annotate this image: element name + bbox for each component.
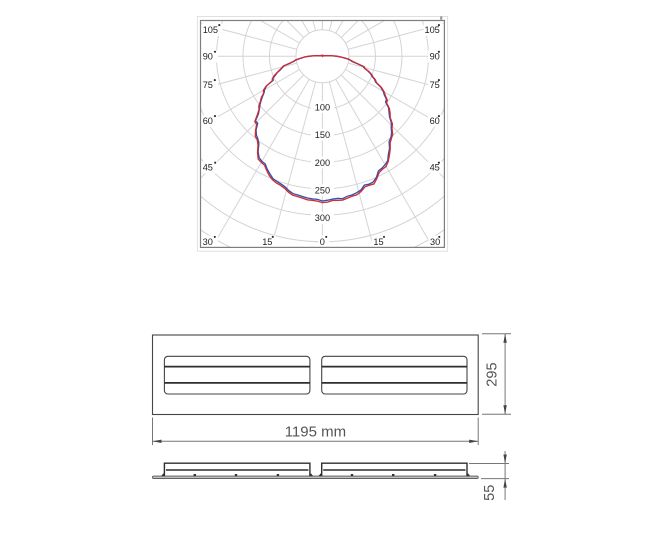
svg-text:45: 45 [430, 163, 440, 173]
svg-text:250: 250 [315, 186, 330, 196]
svg-text:0: 0 [320, 237, 325, 247]
svg-text:300: 300 [315, 213, 330, 223]
svg-text:15: 15 [262, 237, 272, 247]
svg-text:15: 15 [373, 237, 383, 247]
svg-text:75: 75 [203, 80, 213, 90]
svg-text:60: 60 [430, 116, 440, 126]
svg-text:105: 105 [203, 25, 218, 35]
svg-text:200: 200 [315, 158, 330, 168]
svg-text:30: 30 [430, 237, 440, 247]
svg-text:30: 30 [203, 237, 213, 247]
svg-text:90: 90 [203, 52, 213, 62]
svg-text:1195 mm: 1195 mm [285, 423, 346, 440]
svg-text:75: 75 [430, 80, 440, 90]
svg-text:45: 45 [203, 163, 213, 173]
svg-text:100: 100 [315, 102, 330, 112]
svg-text:105: 105 [424, 25, 439, 35]
svg-text:60: 60 [203, 116, 213, 126]
svg-text:55: 55 [482, 485, 498, 501]
svg-text:150: 150 [315, 130, 330, 140]
svg-text:90: 90 [430, 52, 440, 62]
svg-text:295: 295 [485, 362, 501, 386]
